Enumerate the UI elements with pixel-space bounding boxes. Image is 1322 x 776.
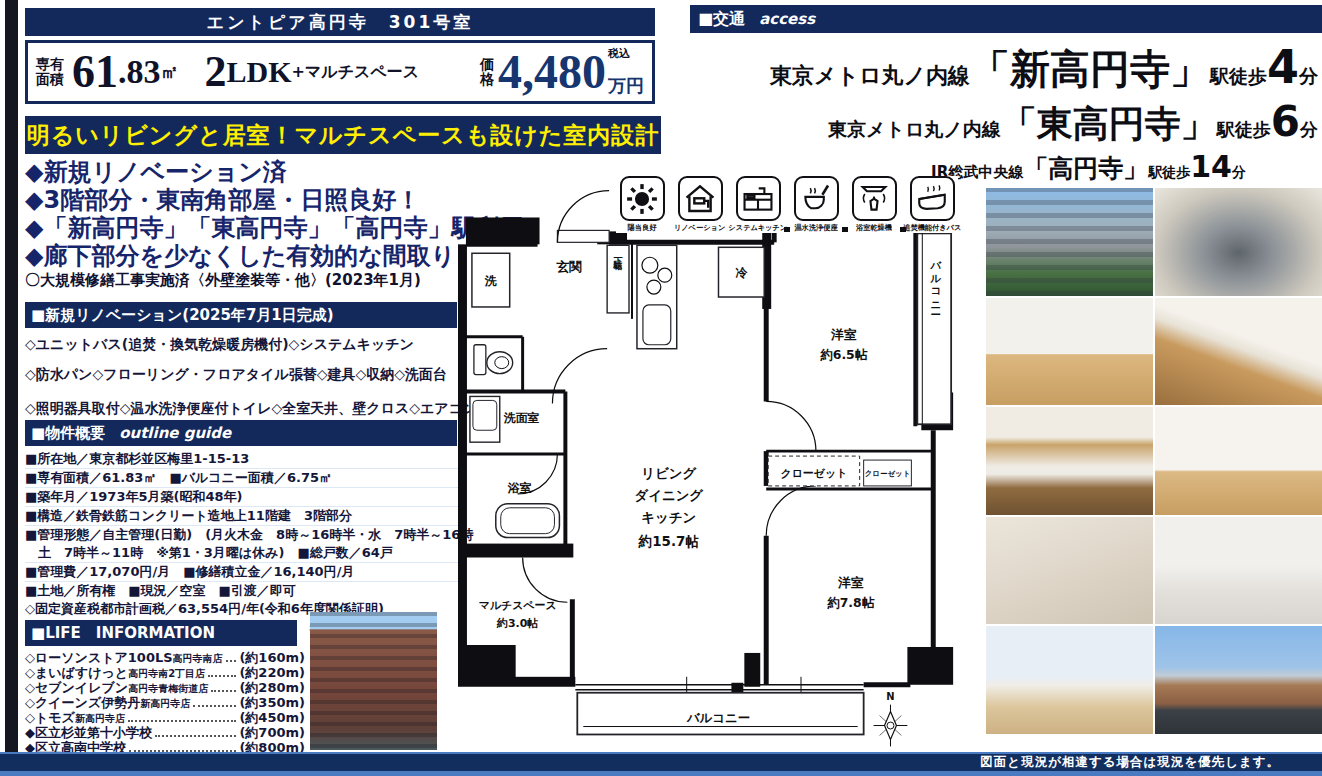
title-bar: エントピア高円寺 301号室 (25, 8, 655, 36)
dot-leader (226, 660, 237, 662)
life-info-header: ■LIFE INFORMATION (25, 620, 297, 646)
feature-icon-row: 陽当良好 リノベーション システムキッチン 温水洗浄便座 浴室乾燥機 (616, 176, 962, 233)
outline-row: ■構造／鉄骨鉄筋コンクリート造地上11階建 3階部分 (25, 507, 459, 526)
life-item: ◇セブンイレブン高円寺青梅街道店(約280m) (25, 680, 305, 695)
label-washer: 洗 (484, 274, 497, 288)
renovation-header: ■新規リノベーション(2025年7月1日完成) (25, 302, 457, 328)
building-name: エントピア高円寺 301号室 (207, 11, 473, 34)
label-entrance: 玄関 (555, 259, 582, 274)
outline-row: ■専有面積／61.83㎡ ■バルコニー面積／6.75㎡ (25, 469, 459, 488)
dot-leader (193, 705, 236, 707)
plan-number: 2 (205, 50, 227, 94)
label-closet-2: クローゼット (865, 469, 911, 478)
reheating-bath-icon: 追焚機能付きバス (906, 176, 958, 233)
label-bathroom: 浴室 (507, 481, 532, 495)
highlight-item: ◆3階部分・東南角部屋・日照良好！ (25, 186, 465, 214)
area-unit: ㎡ (161, 60, 179, 84)
label-bedroom2: 洋室 (838, 575, 864, 590)
catch-banner: 明るいリビングと居室！マルチスペースも設けた室内設計 (25, 116, 661, 154)
renovation-icon: リノベーション (674, 176, 726, 233)
compass-north: N (874, 691, 908, 747)
plan-type: LDK (227, 55, 292, 89)
renovation-item: ◇防水パン◇フローリング・フロアタイル張替◇建具◇収納◇洗面台 (25, 366, 463, 384)
outline-header: ■物件概要 outline guide (25, 420, 457, 446)
highlight-item: ◆「新高円寺」「東高円寺」「高円寺」駅利用 (25, 214, 465, 242)
price-unit-block: 税込 万円 (608, 46, 644, 98)
svg-text:ダイニング: ダイニング (634, 488, 704, 503)
outline-row: ■管理費／17,070円/月 ■修繕積立金／16,140円/月 (25, 563, 459, 582)
outline-row: ■築年月／1973年5月築(昭和48年) (25, 488, 459, 507)
highlight-list: ◆新規リノベーション済 ◆3階部分・東南角部屋・日照良好！ ◆「新高円寺」「東高… (25, 158, 465, 270)
label-bedroom1-size: 約6.5帖 (819, 347, 867, 362)
photo-ldk-with-kitchen (1155, 298, 1322, 406)
price-label: 価 格 (480, 57, 494, 87)
photo-entrance-approach (1155, 188, 1322, 296)
life-info-list: ◇ローソンストア100LS高円寺南店(約160m) ◇まいばすけっと高円寺南2丁… (25, 650, 305, 755)
life-item: ◇クイーンズ伊勢丹新高円寺店(約350m) (25, 695, 305, 710)
life-item: ◆区立杉並第十小学校(約700m) (25, 725, 305, 740)
access-routes: 東京メトロ丸ノ内線「新高円寺」駅徒歩4分 東京メトロ丸ノ内線「東高円寺」駅徒歩6… (690, 36, 1318, 185)
label-washroom: 洗面室 (503, 411, 540, 425)
highlight-item: ◆新規リノベーション済 (25, 158, 465, 186)
svg-text:N: N (886, 691, 894, 702)
highlight-item: ◆廊下部分を少なくした有効的な間取り (25, 242, 465, 270)
route-higashi-koenji: 東京メトロ丸ノ内線「東高円寺」駅徒歩6分 (690, 97, 1318, 149)
svg-text:約15.7帖: 約15.7帖 (638, 534, 699, 549)
route-shin-koenji: 東京メトロ丸ノ内線「新高円寺」駅徒歩4分 (690, 40, 1318, 97)
flyer-page: エントピア高円寺 301号室 専有 面積 61 .83 ㎡ 2 LDK +マルチ… (0, 0, 1322, 776)
label-balcony-bottom: バルコニー (686, 710, 750, 725)
price-box: 専有 面積 61 .83 ㎡ 2 LDK +マルチスペース 価 格 4,480 … (25, 40, 655, 104)
label-balcony-side: バルコニー (929, 253, 943, 316)
system-kitchen-icon: システムキッチン (732, 176, 784, 233)
sunny-icon: 陽当良好 (616, 176, 668, 233)
access-header: ■交通 access (690, 5, 1322, 33)
life-item: ◇トモズ新高円寺店(約450m) (25, 710, 305, 725)
access-header-en: access (759, 10, 815, 28)
renovation-item: ◇照明器具取付◇温水洗浄便座付トイレ◇全室天井、壁クロス◇エアコン (25, 400, 463, 418)
washlet-toilet-icon: 温水洗浄便座 (790, 176, 842, 233)
photo-living-room (986, 298, 1153, 406)
life-item: ◇まいばすけっと高円寺南2丁目店(約220m) (25, 665, 305, 680)
photo-exterior-building (986, 188, 1153, 296)
label-fridge: 冷 (735, 266, 748, 280)
dot-leader (208, 675, 236, 677)
label-bedroom2-size: 約7.8帖 (826, 595, 874, 610)
photo-building-street-view (310, 612, 437, 750)
left-frame-strip (5, 0, 18, 752)
outline-row: ■土地／所有権 ■現況／空室 ■引渡／即可 (25, 582, 459, 600)
label-multi-size: 約3.0帖 (496, 617, 538, 630)
floor-plan: N 玄関 下駄箱 洗 冷 洋室 約6.5帖 バルコニー 洗面室 浴室 リビング … (458, 186, 975, 758)
photo-washbasin (1155, 517, 1322, 625)
renovation-item: ◇ユニットバス(追焚・換気乾燥暖房機付)◇システムキッチン (25, 336, 463, 354)
tax-included-label: 税込 (608, 46, 630, 61)
price-unit: 万円 (608, 74, 644, 98)
photo-corner-room-windows (986, 626, 1153, 734)
photo-kitchen (986, 407, 1153, 515)
area-value-dec: .83 (118, 53, 161, 91)
area-value-int: 61 (72, 49, 118, 95)
label-multi-space: マルチスペース (479, 599, 557, 612)
area-label: 専有 面積 (36, 57, 64, 87)
price-value: 4,480 (498, 49, 606, 95)
photo-balcony-view (1155, 626, 1322, 734)
outline-row: ■所在地／東京都杉並区梅里1-15-13 (25, 450, 459, 469)
dot-leader (211, 690, 236, 692)
life-item: ◇ローソンストア100LS高円寺南店(約160m) (25, 650, 305, 665)
photo-unit-bath (986, 517, 1153, 625)
outline-row: ■管理形態／自主管理(日勤) (月火木金 8時～16時半・水 7時半～16時 (25, 526, 459, 544)
label-ldk: リビング (641, 466, 697, 481)
plan-plus: +マルチスペース (292, 62, 420, 83)
dot-leader (128, 720, 237, 722)
photo-living-room-2 (1155, 407, 1322, 515)
label-closet-1: クローゼット (781, 467, 848, 480)
dot-leader (155, 735, 236, 737)
bathroom-dryer-icon: 浴室乾燥機 (848, 176, 900, 233)
outline-row: 土 7時半～11時 ※第1・3月曜は休み) ■総戸数／64戸 (25, 544, 459, 563)
photo-grid (986, 188, 1322, 734)
outline-header-en: outline guide (119, 424, 231, 442)
outline-table: ■所在地／東京都杉並区梅里1-15-13 ■専有面積／61.83㎡ ■バルコニー… (25, 450, 459, 636)
svg-text:キッチン: キッチン (641, 510, 696, 525)
repair-note: 〇大規模修繕工事実施済〈外壁塗装等・他〉(2023年1月) (25, 271, 421, 290)
label-bedroom1: 洋室 (831, 327, 857, 342)
